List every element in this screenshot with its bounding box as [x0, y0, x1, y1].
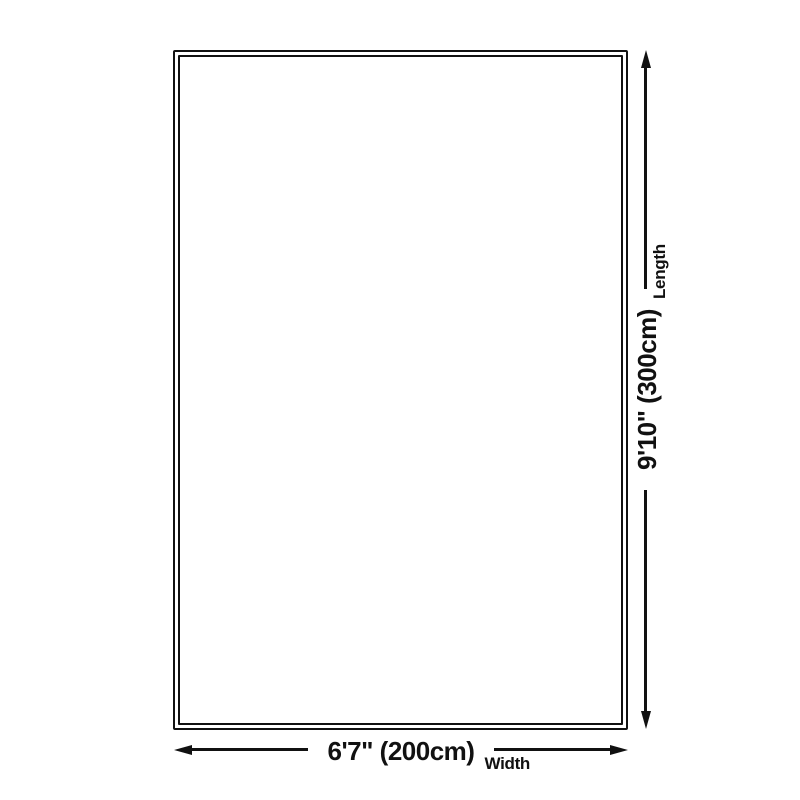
- width-dimension-line-left: [192, 748, 308, 751]
- arrow-down-icon: [641, 711, 651, 729]
- width-dimension-line-right: Width: [494, 748, 610, 751]
- length-dimension-line-bottom: [644, 490, 647, 711]
- width-dimension-arrow: 6'7" (200cm) Width: [174, 738, 628, 761]
- rug-outline: [173, 50, 628, 730]
- rug-dimension-diagram: 6'7" (200cm) Width 9'10" (300cm) Length: [0, 0, 800, 800]
- arrow-left-icon: [174, 745, 192, 755]
- length-dimension-arrow: 9'10" (300cm) Length: [634, 50, 657, 729]
- arrow-up-icon: [641, 50, 651, 68]
- width-label: Width: [484, 755, 530, 772]
- length-dimension-line-top: Length: [644, 68, 647, 289]
- length-label: Length: [651, 244, 668, 299]
- width-value: 6'7" (200cm): [328, 738, 475, 764]
- arrow-right-icon: [610, 745, 628, 755]
- rug-outline-inner-border: [178, 55, 623, 725]
- length-value: 9'10" (300cm): [634, 309, 660, 470]
